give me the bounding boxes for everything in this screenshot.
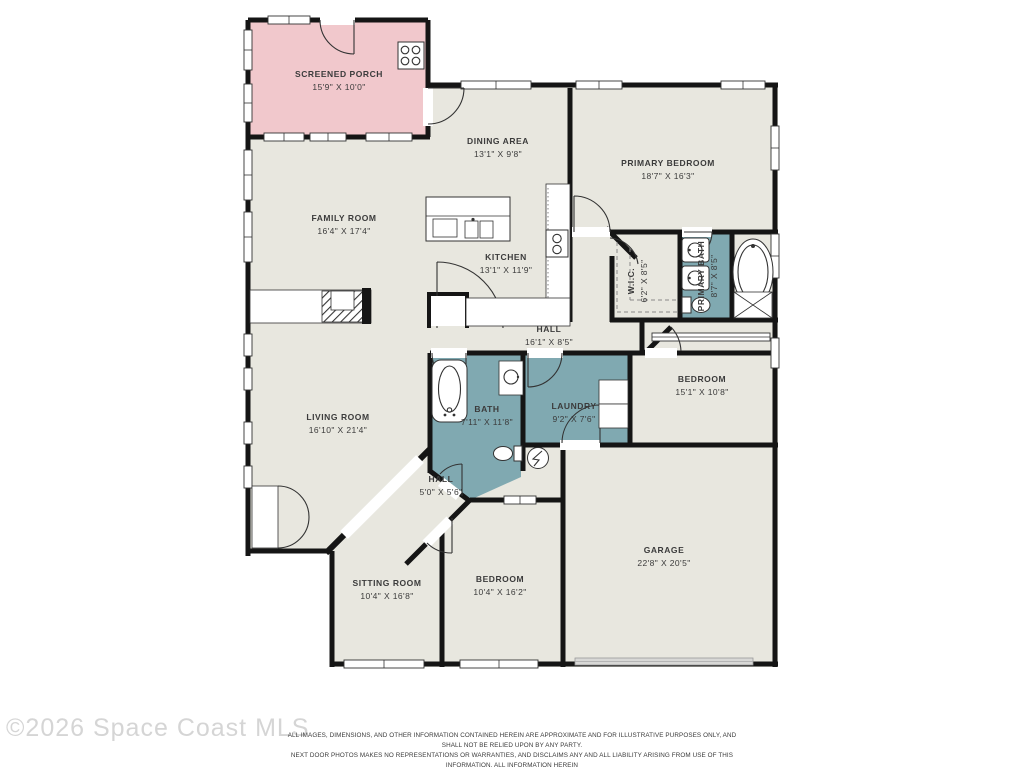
grill-icon [398, 42, 424, 69]
room-name: LIVING ROOM [306, 411, 369, 424]
room-name: FAMILY ROOM [311, 212, 376, 225]
disclaimer: ALL IMAGES, DIMENSIONS, AND OTHER INFORM… [277, 731, 747, 768]
room-dims: 22'8" X 20'5" [637, 557, 690, 570]
room-label-bath: BATH 7'11" X 11'8" [461, 403, 513, 429]
room-label-bedroom-3: BEDROOM 10'4" X 16'2" [473, 573, 526, 599]
room-name: HALL [525, 323, 573, 336]
laundry-fixtures [599, 380, 628, 428]
room-dims: 6'2" X 8'5" [638, 260, 651, 303]
pantry [431, 296, 465, 326]
room-label-sitting-room: SITTING ROOM 10'4" X 16'8" [353, 577, 422, 603]
disclaimer-line: NEXT DOOR PHOTOS MAKES NO REPRESENTATION… [277, 751, 747, 768]
room-label-family-room: FAMILY ROOM 16'4" X 17'4" [311, 212, 376, 238]
room-label-living-room: LIVING ROOM 16'10" X 21'4" [306, 411, 369, 437]
room-label-wic: W.I.C. 6'2" X 8'5" [625, 260, 651, 303]
room-label-garage: GARAGE 22'8" X 20'5" [637, 544, 690, 570]
room-label-dining-area: DINING AREA 13'1" X 9'8" [467, 135, 529, 161]
room-name: LAUNDRY [551, 400, 596, 413]
kitchen-lower-counter [466, 298, 570, 326]
room-dims: 13'1" X 9'8" [467, 148, 529, 161]
room-name: PRIMARY BATH [695, 241, 708, 312]
water-heater-icon [528, 448, 549, 469]
toilet-icon [514, 446, 522, 461]
room-dims: 7'11" X 11'8" [461, 416, 513, 429]
fireplace-icon [250, 288, 371, 324]
room-label-kitchen: KITCHEN 13'1" X 11'9" [480, 251, 533, 277]
room-label-hall: HALL 16'1" X 8'5" [525, 323, 573, 349]
room-dims: 10'4" X 16'2" [473, 586, 526, 599]
room-dims: 8'7" X 8'5" [708, 241, 721, 312]
room-name: DINING AREA [467, 135, 529, 148]
sink-icon [499, 361, 523, 395]
room-name: GARAGE [637, 544, 690, 557]
room-fills [248, 22, 778, 667]
toilet-icon [682, 297, 691, 313]
washer-icon [599, 380, 628, 404]
room-dims: 5'0" X 5'6" [420, 486, 463, 499]
garage-door [575, 658, 753, 665]
room-dims: 10'4" X 16'8" [353, 590, 422, 603]
room-dims: 13'1" X 11'9" [480, 264, 533, 277]
mls-watermark: ©2026 Space Coast MLS [6, 714, 309, 743]
room-dims: 9'2" X 7'6" [551, 413, 596, 426]
room-name: SCREENED PORCH [295, 68, 383, 81]
dryer-icon [599, 404, 628, 428]
room-dims: 15'9" X 10'0" [295, 81, 383, 94]
room-label-primary-bedroom: PRIMARY BEDROOM 18'7" X 16'3" [621, 157, 715, 183]
floorplan-page: SCREENED PORCH 15'9" X 10'0" DINING AREA… [0, 0, 1024, 768]
room-name: BEDROOM [675, 373, 728, 386]
room-label-laundry: LAUNDRY 9'2" X 7'6" [551, 400, 596, 426]
room-label-screened-porch: SCREENED PORCH 15'9" X 10'0" [295, 68, 383, 94]
room-name: BEDROOM [473, 573, 526, 586]
room-label-hall-2: HALL 5'0" X 5'6" [420, 473, 463, 499]
room-name: PRIMARY BEDROOM [621, 157, 715, 170]
room-label-bedroom-2: BEDROOM 15'1" X 10'8" [675, 373, 728, 399]
room-dims: 18'7" X 16'3" [621, 170, 715, 183]
room-label-primary-bath: PRIMARY BATH 8'7" X 8'5" [695, 241, 721, 312]
disclaimer-line: ALL IMAGES, DIMENSIONS, AND OTHER INFORM… [277, 731, 747, 751]
room-name: KITCHEN [480, 251, 533, 264]
room-dims: 15'1" X 10'8" [675, 386, 728, 399]
room-dims: 16'4" X 17'4" [311, 225, 376, 238]
sink-icon [465, 221, 478, 238]
room-name: W.I.C. [625, 260, 638, 303]
floorplan-drawing [0, 0, 1024, 768]
room-name: SITTING ROOM [353, 577, 422, 590]
room-dims: 16'10" X 21'4" [306, 424, 369, 437]
room-name: HALL [420, 473, 463, 486]
dishwasher-icon [433, 219, 457, 237]
room-dims: 16'1" X 8'5" [525, 336, 573, 349]
room-name: BATH [461, 403, 513, 416]
